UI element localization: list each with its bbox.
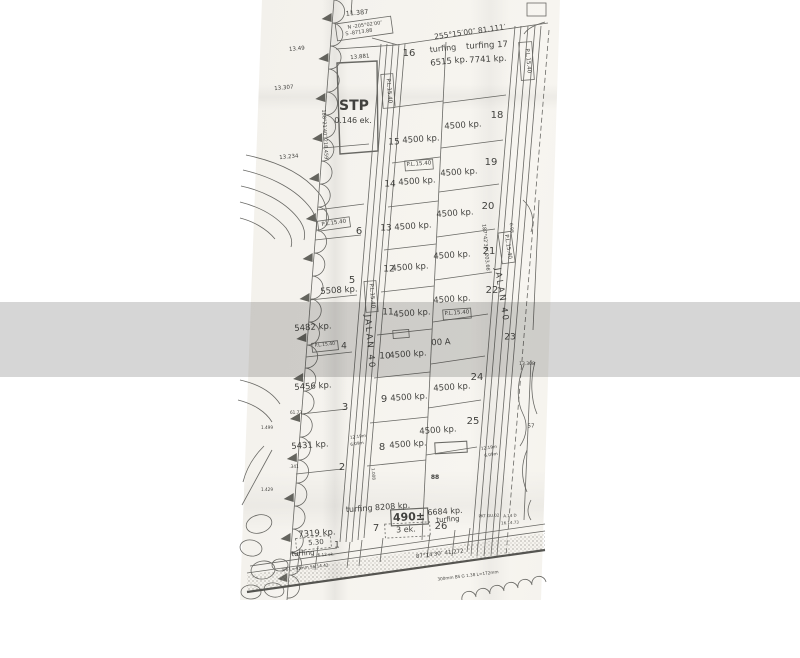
map-label: 6.09m — [484, 452, 498, 458]
map-label: 4500 kp. — [394, 221, 432, 232]
map-label: 1.499 — [261, 426, 273, 430]
map-label: 5456 kp. — [294, 381, 332, 392]
map-label: 6.12 ek. — [317, 552, 334, 557]
map-label: 3 — [342, 403, 348, 413]
map-label: P.L.15.40 — [321, 220, 346, 229]
map-label: 2 — [339, 463, 345, 473]
map-label: 0.98 — [507, 223, 512, 233]
map-label: 5508 kp. — [320, 285, 358, 296]
map-label: P.L.15.40 — [384, 78, 392, 103]
map-label: P.L.15.40 — [406, 161, 431, 168]
map-label: .341 — [289, 465, 298, 469]
map-label: 4500 kp. — [398, 176, 436, 187]
map-label: 21 — [483, 247, 496, 257]
map-label: turfing — [291, 550, 315, 559]
map-label: 4500 kp. — [433, 250, 471, 261]
map-label: 4500 kp. — [436, 208, 474, 219]
map-label: 61.73 — [290, 411, 302, 415]
watermark-band: Nazree Abdul Aziz PropertyGuru — [0, 302, 800, 377]
map-label: 13.307 — [274, 85, 294, 92]
map-label: 3/8 L=43mm 56.14.42 — [281, 563, 329, 572]
map-label: 13.49 — [289, 47, 305, 54]
map-label: 4500 kp. — [433, 382, 471, 393]
map-label: 5.30 — [308, 539, 324, 547]
propertyguru-logo: PropertyGuru — [640, 616, 800, 658]
map-label: 1.429 — [261, 488, 273, 492]
map-label: 15 — [388, 139, 399, 148]
map-label: 4500 kp. — [389, 439, 427, 450]
map-label: 188°21′40″ 218.459′ — [320, 109, 328, 160]
map-label: 20 — [482, 202, 495, 212]
map-label: 26 — [435, 522, 448, 532]
map-label: 16.14.73 — [501, 521, 519, 526]
survey-plan-photo: 11.387N -205°02′00″S -8713.88255°15′00″ … — [0, 0, 800, 600]
map-label: 0.146 ek. — [334, 117, 372, 125]
map-label: 7741 kp. — [469, 55, 507, 65]
map-label: A.14 D — [503, 514, 517, 519]
map-label: 8 — [379, 443, 385, 453]
map-label: 13 — [380, 225, 391, 234]
map-label: 1.008 — [370, 468, 375, 480]
map-label: 57 — [528, 424, 535, 430]
map-label: 4500 kp. — [402, 134, 440, 145]
plan-labels-layer: 11.387N -205°02′00″S -8713.88255°15′00″ … — [0, 0, 800, 600]
map-label: 18 — [491, 111, 504, 121]
map-label: 255°15′00″ 81.111′ — [434, 23, 506, 40]
propertyguru-house-icon — [640, 619, 676, 655]
map-label: 6.09m — [350, 441, 364, 447]
map-label: 16 — [403, 49, 416, 59]
map-label: 12.19m — [350, 434, 367, 440]
map-label: 9 — [381, 395, 387, 405]
map-label: 14 — [384, 181, 395, 190]
map-label: P.L.15.40 — [502, 234, 511, 259]
map-label: turfing — [429, 44, 456, 55]
map-label: P.L.15.40 — [523, 48, 531, 73]
map-label: 13.881 — [350, 54, 370, 61]
map-label: 25 — [467, 417, 480, 427]
brand-name: PropertyGuru — [683, 626, 800, 648]
map-label: 6515 kp. — [430, 56, 468, 68]
map-label: 19 — [485, 158, 498, 168]
map-label: 88 — [431, 475, 439, 481]
map-label: turfing 17 — [466, 41, 508, 52]
map-label: S -8713.88 — [345, 29, 373, 38]
map-label: 490± — [393, 511, 426, 524]
map-label: 5431 kp. — [291, 440, 329, 451]
map-label: 300mm BS G 1.38 L=172mm — [437, 570, 499, 582]
map-label: 4500 kp. — [390, 392, 428, 403]
map-label: PKT GU.02 — [478, 513, 499, 518]
map-label: 4500 kp. — [391, 262, 429, 273]
photographer-watermark: Nazree Abdul Aziz — [299, 619, 529, 650]
map-label: 6 — [356, 227, 362, 237]
map-label: 4500 kp. — [440, 167, 478, 178]
map-label: 11.387 — [345, 9, 368, 17]
map-label: 7 — [373, 524, 379, 534]
map-label: 13.234 — [279, 154, 299, 161]
map-label: 4500 kp. — [444, 120, 482, 131]
map-label: 87°14′30″ 41.272 — [416, 549, 464, 560]
map-label: 3 ek. — [396, 525, 416, 534]
map-label: STP — [339, 99, 369, 113]
map-label: 1 — [334, 542, 340, 551]
map-label: 4500 kp. — [419, 425, 457, 436]
